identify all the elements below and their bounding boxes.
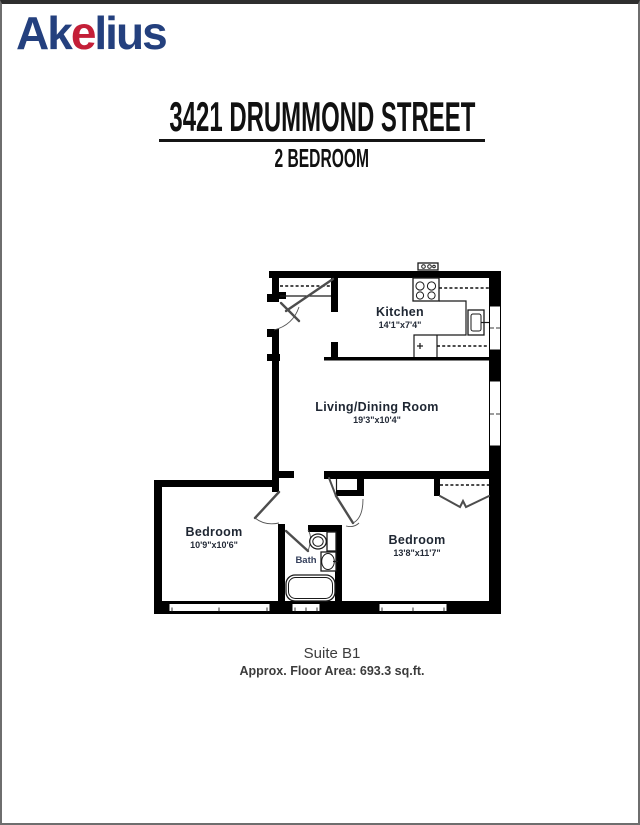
entry-door <box>281 303 299 321</box>
bathtub-icon <box>286 575 335 601</box>
room-label-bedroom-2: Bedroom <box>389 533 446 547</box>
bedroom2-door-a <box>329 478 336 496</box>
bedroom1-door <box>255 492 279 518</box>
logo-accent-letter: e <box>71 7 95 59</box>
toilet-icon <box>310 532 336 551</box>
document-page: Akelius 3421 DRUMMOND STREET 2 BEDROOM <box>0 0 640 825</box>
page-subtitle: 2 BEDROOM <box>275 145 369 171</box>
logo-text-suffix: lius <box>94 7 165 59</box>
suite-label: Suite B1 <box>12 645 640 662</box>
room-dims-kitchen: 14'1"x7'4" <box>379 320 422 330</box>
room-label-kitchen: Kitchen <box>376 305 424 319</box>
bathroom-sink-icon <box>321 552 338 571</box>
footer: Suite B1 Approx. Floor Area: 693.3 sq.ft… <box>12 645 640 678</box>
floorplan-drawing: Kitchen 14'1"x7'4" Living/Dining Room 19… <box>142 254 522 629</box>
bath-door <box>286 531 308 551</box>
bedroom2-door-b <box>336 496 353 523</box>
closet-bifold-icon <box>440 496 489 507</box>
room-label-bath: Bath <box>295 555 316 566</box>
room-dims-living-dining: 19'3"x10'4" <box>353 415 401 425</box>
doors <box>255 279 363 551</box>
stove-icon <box>413 263 439 301</box>
room-dims-bedroom-2: 13'8"x11'7" <box>393 548 440 558</box>
page-title: 3421 DRUMMOND STREET <box>169 96 475 138</box>
room-label-living-dining: Living/Dining Room <box>315 400 438 414</box>
bedroom1-window-icon <box>169 604 270 612</box>
kitchen-sink-icon <box>468 310 489 335</box>
header: 3421 DRUMMOND STREET 2 BEDROOM <box>2 96 640 172</box>
living-window-icon <box>490 381 501 446</box>
entry-closet-door <box>286 279 333 311</box>
logo-text-prefix: Ak <box>16 7 71 59</box>
room-dims-bedroom-1: 10'9"x10'6" <box>190 540 238 550</box>
room-label-bedroom-1: Bedroom <box>186 525 243 539</box>
floor-area-label: Approx. Floor Area: 693.3 sq.ft. <box>12 664 640 678</box>
akelius-logo: Akelius <box>16 10 166 56</box>
